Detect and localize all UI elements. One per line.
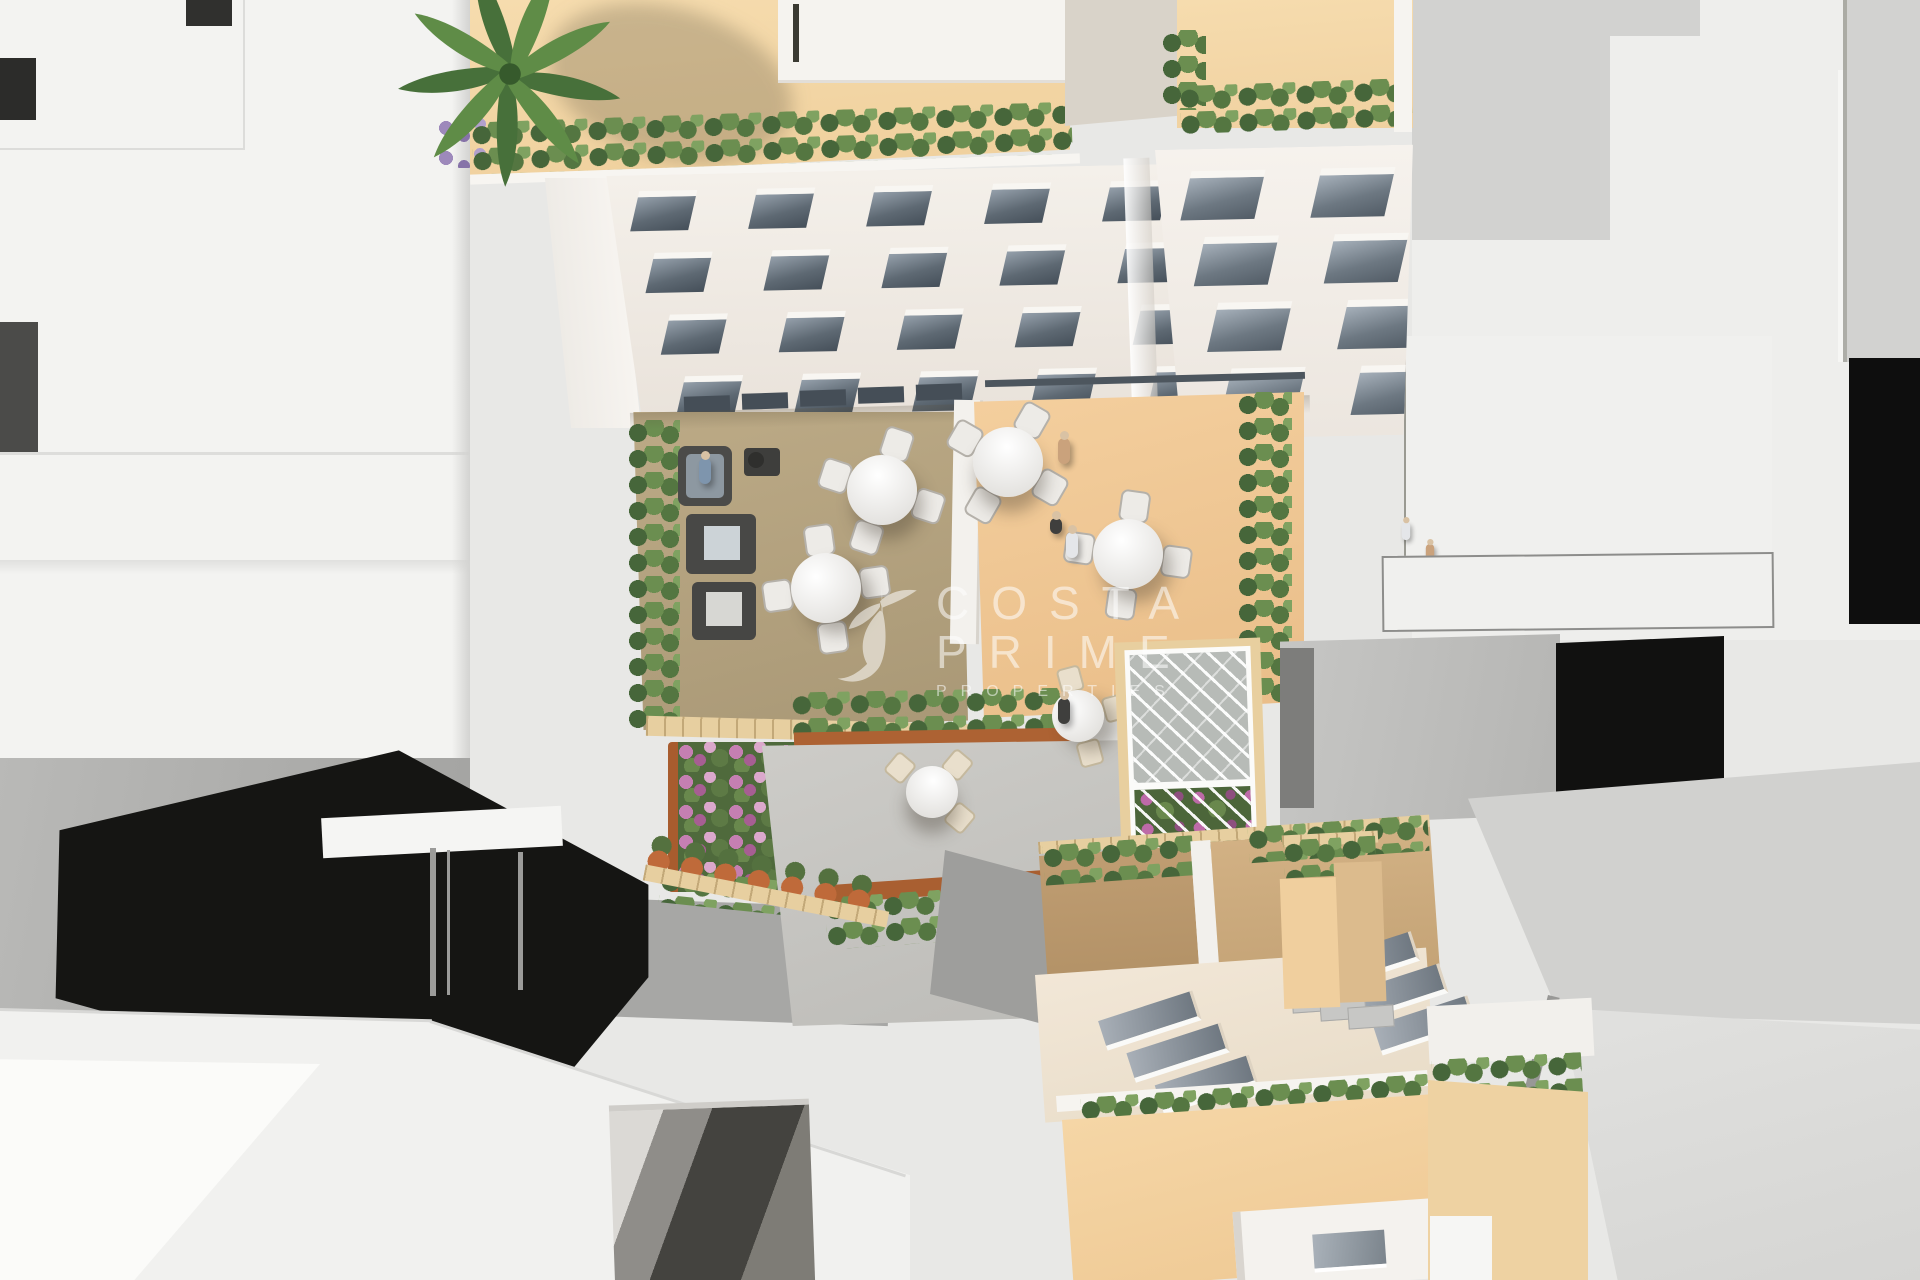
aerial-render-canvas: COSTA PRIME PROPERTIES [0, 0, 1920, 1280]
roof-joint-line [0, 452, 470, 455]
roof-shade-band [0, 560, 470, 574]
window [661, 313, 728, 354]
parapet [1394, 0, 1412, 132]
dark-slot [793, 4, 799, 62]
canopy-post [518, 852, 523, 990]
window [881, 247, 948, 288]
watermark-line1: COSTA [936, 579, 1201, 628]
person [1058, 438, 1070, 464]
block-side-wall [1280, 648, 1314, 808]
white-penthouse [1232, 1198, 1440, 1280]
person [699, 458, 711, 484]
black-shadow-band [1849, 358, 1920, 624]
roof-joint-line [243, 0, 245, 150]
beige-wall [1334, 861, 1387, 1003]
base-window-slot [742, 392, 789, 410]
step [1347, 1004, 1394, 1029]
round-table [838, 446, 926, 534]
cushion [704, 526, 740, 560]
window [779, 311, 846, 352]
window [999, 244, 1066, 285]
roof-joint-line [0, 148, 245, 150]
left-edge-planters [628, 420, 680, 728]
white-hut-roof [1430, 1216, 1492, 1280]
peach-floor [1280, 877, 1341, 1009]
cushion [706, 592, 742, 626]
big-box-top-face [1468, 762, 1920, 1024]
window [1207, 301, 1292, 352]
neighbor-roof [1847, 0, 1920, 362]
watermark-line3: PROPERTIES [936, 683, 1201, 701]
dark-skylight [186, 0, 232, 26]
neighbor-roof [1406, 336, 1772, 558]
ottoman [686, 514, 756, 574]
window [630, 190, 697, 231]
canopy-post [430, 848, 436, 996]
inner-courtyard-hole [609, 1099, 815, 1280]
window [984, 183, 1051, 224]
watermark-line2: PRIME [936, 628, 1201, 677]
base-window-slot [916, 383, 963, 401]
window [1194, 235, 1279, 286]
person [1402, 522, 1410, 540]
base-window-slot [800, 389, 847, 407]
outlined-flat-roof [1382, 552, 1775, 632]
base-window-slot [858, 386, 905, 404]
dark-skylight [0, 58, 36, 120]
window [748, 187, 815, 228]
window [645, 252, 712, 293]
window [763, 249, 830, 290]
shaded-side-wall [1065, 0, 1177, 126]
canopy-post [447, 850, 450, 995]
person [1050, 518, 1062, 534]
person [1066, 532, 1078, 558]
window [866, 185, 933, 226]
roof-bulkhead [778, 0, 1070, 83]
terrace-hedge-row [1179, 78, 1413, 134]
window [1324, 233, 1409, 284]
watermark: COSTA PRIME PROPERTIES [834, 566, 1254, 714]
dark-roof-strip [0, 322, 38, 452]
window [897, 308, 964, 349]
window [1310, 167, 1395, 218]
seated-person [748, 452, 764, 468]
palm-tree [390, 0, 630, 194]
ottoman [692, 582, 756, 640]
window [1015, 306, 1082, 347]
skylight [1312, 1230, 1386, 1273]
window [1180, 170, 1265, 221]
hummingbird-logo-icon [834, 578, 926, 702]
big-box-front-face [1560, 1008, 1920, 1280]
chair [761, 578, 795, 614]
